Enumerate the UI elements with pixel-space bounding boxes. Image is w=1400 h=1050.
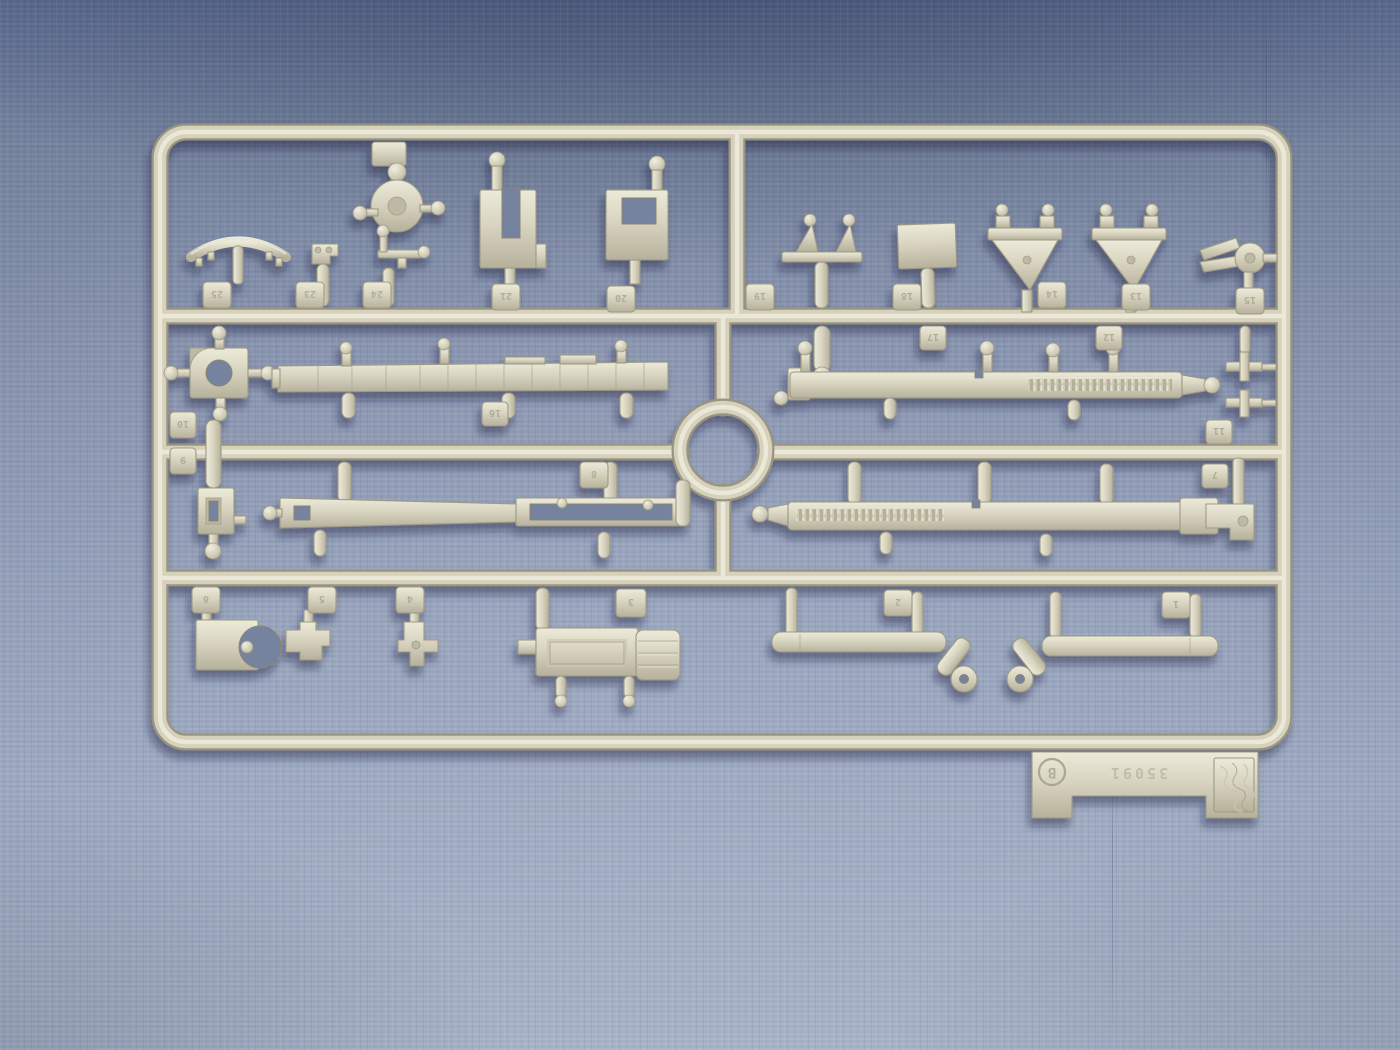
part-number-tab: 19	[746, 284, 774, 310]
part-number-tab: 21	[492, 284, 520, 310]
part-number-tab: 1	[1162, 592, 1190, 618]
part-number: 19	[754, 290, 766, 301]
part-barrel-lower	[752, 462, 1246, 556]
part-arc-bow	[191, 239, 286, 284]
part-number: 21	[500, 290, 512, 301]
part-number: 14	[1046, 288, 1058, 299]
part-number: 4	[407, 593, 413, 604]
part-tow-pins	[1226, 326, 1276, 417]
part-number: 1	[1173, 598, 1179, 609]
part-number: 2	[895, 596, 901, 607]
part-number: 12	[1103, 331, 1115, 342]
logo-stamp	[1214, 758, 1254, 812]
part-segmented-beam	[272, 338, 668, 418]
part-number-tab: 4	[396, 587, 424, 613]
part-number-tab: 5	[308, 587, 336, 613]
photo-of-sprue: 25 23 24 21 20 19 18 14 13 15 17 12 10 9…	[0, 0, 1400, 1050]
part-number-tab: 3	[616, 589, 646, 617]
sprue: 25 23 24 21 20 19 18 14 13 15 17 12 10 9…	[0, 0, 1400, 1050]
part-number: 20	[615, 292, 627, 303]
part-number-tab: 12	[1096, 326, 1122, 350]
part-disc-wheel	[353, 142, 445, 232]
part-number-tab: 8	[580, 462, 608, 488]
part-u-bracket	[480, 152, 546, 284]
part-number: 13	[1130, 290, 1142, 301]
part-number-tab: 20	[607, 286, 635, 312]
id-tag: B 35091	[1032, 752, 1258, 818]
part-number-tab: 17	[920, 326, 946, 350]
part-number-tab: 14	[1038, 282, 1066, 308]
part-number: 25	[211, 288, 223, 299]
part-barrel-upper	[774, 341, 1220, 420]
sprue-letter: B	[1048, 764, 1056, 780]
part-number-tab: 24	[363, 282, 391, 308]
part-cut-box	[196, 611, 281, 670]
part-number-tab: 25	[203, 282, 231, 308]
part-number-tab: 11	[1206, 420, 1232, 444]
part-number: 23	[304, 288, 316, 299]
part-number: 3	[628, 596, 634, 607]
part-number: 24	[371, 288, 383, 299]
part-sail-sight	[782, 214, 862, 308]
part-number: 10	[177, 418, 189, 429]
part-number: 8	[591, 468, 597, 479]
part-number-tab: 23	[296, 282, 324, 308]
part-number: 17	[927, 331, 939, 342]
tag-embossed-code: 35091	[1108, 764, 1168, 782]
part-number: 7	[1212, 469, 1218, 480]
part-number-tab: 2	[884, 590, 912, 616]
part-muzzle-clamp	[1200, 238, 1277, 288]
part-number: 9	[180, 454, 186, 465]
part-number: 11	[1213, 425, 1225, 436]
part-number-tab: 6	[192, 587, 220, 613]
part-number: 15	[1244, 294, 1256, 305]
part-number-tab: 9	[170, 448, 196, 474]
part-number-tab: 7	[1202, 464, 1228, 488]
part-number-tab: 15	[1236, 288, 1264, 314]
runner-ring-junction	[680, 407, 766, 493]
part-number-tab: 18	[893, 284, 921, 310]
part-number-tab: 16	[482, 402, 508, 426]
part-number-tab: 10	[170, 412, 196, 438]
part-t-fitting	[398, 608, 438, 666]
part-castle-bracket	[286, 610, 330, 660]
part-number-tab: 13	[1122, 284, 1150, 310]
part-number: 16	[489, 407, 501, 418]
part-crank-cylinder-left	[772, 588, 977, 692]
part-number: 6	[203, 593, 209, 604]
part-number: 5	[319, 593, 325, 604]
part-number: 18	[901, 290, 913, 301]
part-slot-block	[198, 488, 246, 559]
part-window-bracket	[606, 156, 668, 284]
part-muzzle-cylinder	[518, 588, 680, 707]
